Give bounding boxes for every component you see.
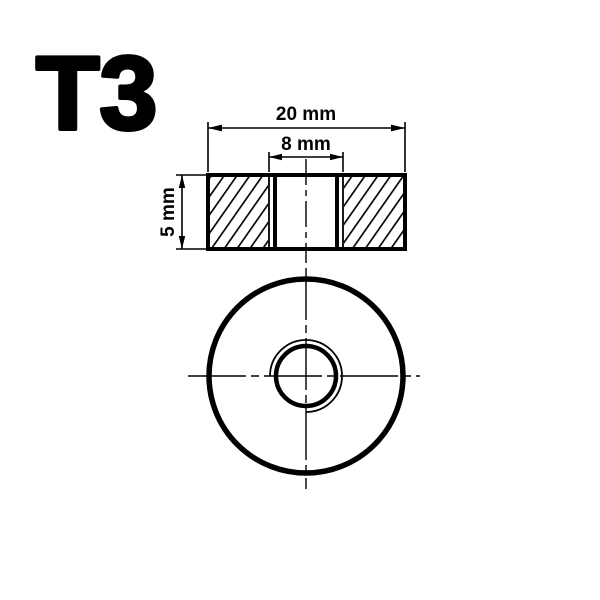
dimension-label-thickness: 5 mm xyxy=(158,187,179,237)
hatch-right xyxy=(344,176,404,248)
part-label: T3 xyxy=(36,36,157,152)
dimension-label-outer-width: 20 mm xyxy=(276,104,336,125)
dimension-label-hole-width: 8 mm xyxy=(281,134,331,155)
technical-drawing-page: T3 20 mm 8 mm xyxy=(0,0,600,600)
technical-drawing-canvas: T3 20 mm 8 mm xyxy=(0,0,600,600)
hatch-left xyxy=(209,176,268,248)
section-view xyxy=(208,159,405,263)
